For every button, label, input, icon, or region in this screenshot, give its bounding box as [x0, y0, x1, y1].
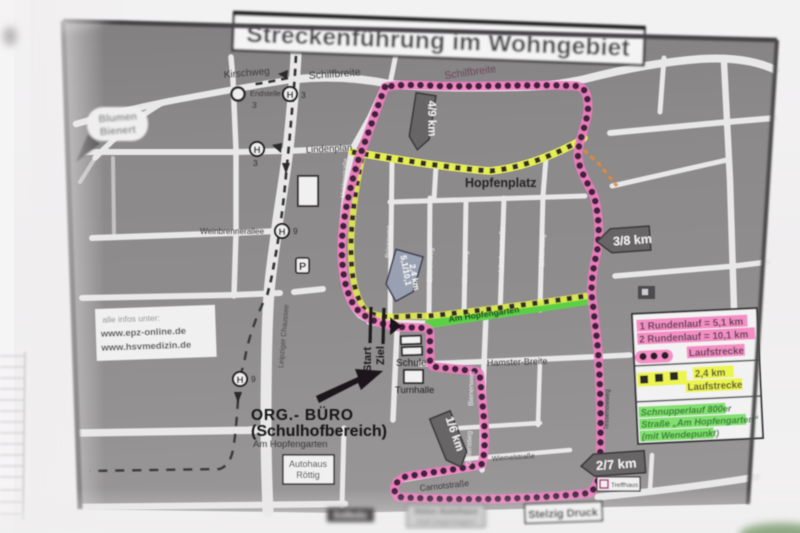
svg-text:H: H [287, 90, 294, 101]
svg-text:3: 3 [253, 158, 258, 168]
svg-text:Endstelle: Endstelle [250, 89, 281, 98]
svg-text:Volvo Autohaus: Volvo Autohaus [414, 506, 478, 516]
svg-text:Eichenweg: Eichenweg [427, 247, 435, 282]
svg-text:3/8 km: 3/8 km [613, 232, 653, 249]
svg-text:4/9 km: 4/9 km [425, 101, 438, 137]
svg-text:2,4 km: 2,4 km [695, 368, 726, 380]
svg-text:Turnhalle: Turnhalle [395, 385, 434, 396]
svg-text:P: P [299, 261, 306, 273]
svg-text:Bienenweg: Bienenweg [468, 371, 476, 406]
svg-text:H: H [279, 227, 286, 238]
svg-text:Hamster-Breite: Hamster-Breite [487, 356, 548, 368]
svg-text:Start: Start [362, 347, 374, 372]
svg-text:(Schulhofbereich): (Schulhofbereich) [251, 423, 387, 440]
svg-text:2/7 km: 2/7 km [596, 455, 637, 473]
svg-text:H: H [237, 375, 244, 386]
svg-text:Stelzig Druck: Stelzig Druck [528, 507, 599, 521]
svg-text:Schule: Schule [396, 358, 427, 369]
svg-text:H: H [254, 145, 261, 156]
svg-text:Grillenstieg: Grillenstieg [466, 431, 474, 466]
svg-text:3: 3 [252, 100, 257, 110]
svg-text:SoMedia: SoMedia [334, 511, 367, 520]
svg-text:Treffhaus: Treffhaus [611, 482, 639, 489]
svg-text:Rolf Degenhagen: Rolf Degenhagen [417, 517, 475, 526]
svg-text:Birkenweg: Birkenweg [539, 234, 547, 267]
svg-text:9: 9 [293, 226, 298, 236]
svg-text:Röttig: Röttig [296, 470, 320, 480]
svg-text:Weinbrennerallee: Weinbrennerallee [200, 227, 264, 236]
svg-text:alle infos unter:: alle infos unter: [102, 313, 160, 325]
svg-text:Hopfenplatz: Hopfenplatz [465, 176, 537, 190]
svg-text:Brixenweg: Brixenweg [385, 225, 393, 258]
svg-text:Ulmenweg: Ulmenweg [462, 251, 470, 284]
svg-text:Am Hopfengarten: Am Hopfengarten [253, 439, 327, 450]
svg-text:Ziel: Ziel [375, 346, 387, 365]
svg-text:3: 3 [301, 90, 306, 100]
svg-text:ORG.- BÜRO: ORG.- BÜRO [251, 407, 354, 424]
svg-text:Autohaus: Autohaus [289, 459, 328, 469]
svg-text:9: 9 [251, 374, 256, 384]
svg-text:Tessenowweg: Tessenowweg [603, 389, 611, 430]
